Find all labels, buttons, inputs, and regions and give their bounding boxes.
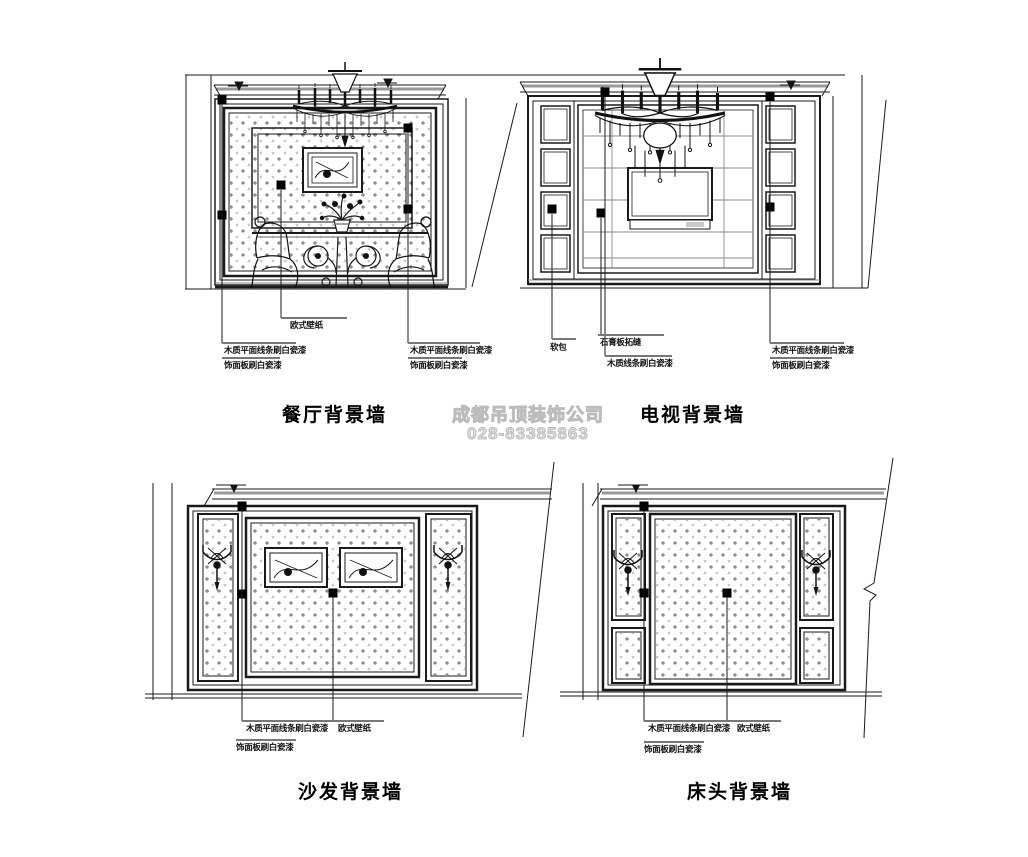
watermark: 成都吊顶装饰公司 028-83385863 <box>452 406 604 443</box>
annotation-wood-line: 木质平面线条刷白瓷漆 <box>410 346 492 355</box>
bed-wall-title: 床头背景墙 <box>687 777 792 804</box>
framed-picture <box>303 148 362 192</box>
annotation-panel-paint: 饰面板刷白瓷漆 <box>236 743 293 752</box>
bed-wall-drawing <box>560 458 893 742</box>
annotation-soft-pad: 软包 <box>550 343 566 352</box>
detail-flag-icon <box>377 79 397 87</box>
dining-wall-title: 餐厅背景墙 <box>282 400 387 427</box>
annotation-wood-line: 木质线条刷白瓷漆 <box>607 359 673 368</box>
dining-wall-drawing <box>214 62 480 358</box>
tv-icon <box>628 168 712 229</box>
annotation-wood-line: 木质平面线条刷白瓷漆 <box>772 346 854 355</box>
break-lines-top <box>466 98 517 288</box>
chandelier-icon <box>595 58 725 182</box>
left-panel-squares <box>541 106 570 272</box>
framed-picture <box>340 548 402 587</box>
annotation-wallpaper: 欧式壁纸 <box>737 724 770 733</box>
annotation-wallpaper: 欧式壁纸 <box>290 321 323 330</box>
annotation-panel-paint: 饰面板刷白瓷漆 <box>644 745 701 754</box>
framed-picture <box>265 548 327 587</box>
watermark-company: 成都吊顶装饰公司 <box>452 406 604 425</box>
annotation-gypsum: 石膏板拓缝 <box>600 338 641 347</box>
annotation-wallpaper: 欧式壁纸 <box>338 724 371 733</box>
tv-wall-drawing <box>520 58 886 358</box>
annotation-wood-line: 木质平面线条刷白瓷漆 <box>246 724 328 733</box>
annotation-panel-paint: 饰面板刷白瓷漆 <box>772 361 829 370</box>
top-elevations <box>185 58 886 358</box>
watermark-phone: 028-83385863 <box>452 425 604 443</box>
cad-sheet: 欧式壁纸 木质平面线条刷白瓷漆 饰面板刷白瓷漆 木质平面线条刷白瓷漆 饰面板刷白… <box>0 0 1028 857</box>
tv-wall-title: 电视背景墙 <box>640 400 745 427</box>
annotation-panel-paint: 饰面板刷白瓷漆 <box>410 361 467 370</box>
annotation-panel-paint: 饰面板刷白瓷漆 <box>224 361 281 370</box>
bottom-elevations <box>145 458 893 742</box>
sofa-wall-title: 沙发背景墙 <box>298 777 403 804</box>
annotation-wood-line: 木质平面线条刷白瓷漆 <box>224 346 306 355</box>
sofa-wall-drawing <box>145 462 554 740</box>
annotation-wood-line: 木质平面线条刷白瓷漆 <box>648 724 730 733</box>
